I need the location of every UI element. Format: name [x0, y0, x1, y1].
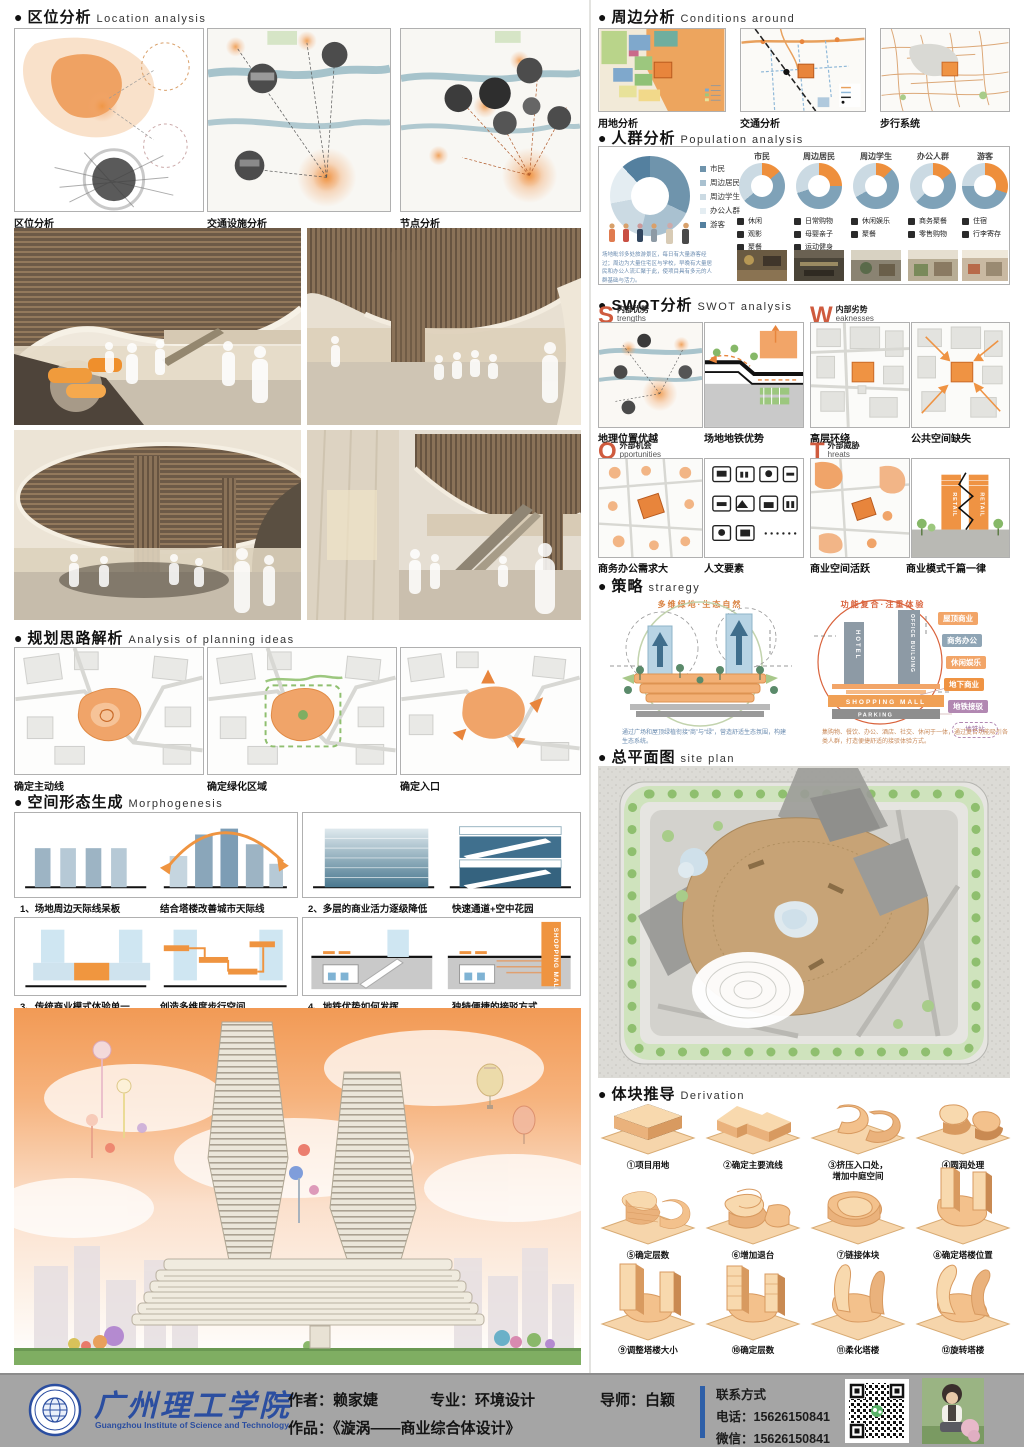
- strategy-tag: 商务办公: [942, 634, 982, 647]
- hotel-label: HOTEL: [854, 630, 860, 660]
- bullet-icon: ●: [14, 795, 22, 809]
- planning-diagram-green: [207, 647, 397, 775]
- section-header-conditions: ● 周边分析 Conditions around: [598, 6, 795, 27]
- need-item: 聚餐: [851, 229, 890, 239]
- donut-title: 周边居民: [794, 151, 844, 162]
- morph-caption: 快速通道+空中花园: [452, 901, 534, 915]
- swot-cn: 内部优势: [617, 305, 649, 314]
- work-title-text: 作品：《漩涡——商业综合体设计》: [288, 1417, 521, 1438]
- morph-caption: 结合塔楼改善城市天际线: [160, 901, 265, 915]
- derivation-block-12: [913, 1262, 1013, 1342]
- need-item: 行李寄存: [962, 229, 1001, 239]
- derivation-caption: ⑪柔化塔楼: [808, 1345, 908, 1356]
- planning-caption: 确定入口: [400, 778, 440, 793]
- needs-students: 休闲娱乐 聚餐: [851, 216, 890, 239]
- shopping-icon: [794, 218, 801, 225]
- legend-swatch: [700, 194, 706, 200]
- bullet-icon: ●: [598, 10, 606, 24]
- strategy-left-note: 通过广场和屋顶绿植衔接“商”与“绿”，营造舒适生态氛围，构建生态系统。: [622, 729, 790, 748]
- parking-label: PARKING: [858, 713, 893, 719]
- section-subtitle-swot: SWOT analysis: [697, 301, 792, 313]
- bullet-icon: ●: [14, 10, 22, 24]
- school-name: 广州理工学院: [94, 1381, 292, 1425]
- derivation-block-2: [703, 1098, 803, 1156]
- legend-swatch: [700, 208, 706, 214]
- need-item: 观影: [737, 229, 762, 239]
- swot-w-space-map: [911, 322, 1010, 428]
- scene-photo: [737, 250, 787, 281]
- strategy-tag: 休闲娱乐: [946, 656, 986, 669]
- section-header-strategy: ● 策略 straregy: [598, 575, 700, 596]
- wechat-qr-code: [845, 1379, 909, 1443]
- derivation-block-3: [808, 1098, 908, 1156]
- need-item: 日常购物: [794, 216, 833, 226]
- bullet-icon: ●: [598, 579, 606, 593]
- site-plan: [598, 766, 1010, 1078]
- family-icon: [794, 231, 801, 238]
- legend-item: 办公人群: [700, 205, 740, 216]
- people-illustration: [604, 222, 696, 248]
- section-subtitle-location: Location analysis: [96, 13, 206, 25]
- section-title-conditions: 周边分析: [611, 6, 675, 27]
- bullet-icon: ●: [598, 750, 606, 764]
- legend-item: 周边居民: [700, 177, 740, 188]
- swot-s-metro-diagram: [704, 322, 804, 428]
- legend-item: 市民: [700, 163, 740, 174]
- derivation-caption: ⑫旋转塔楼: [913, 1345, 1013, 1356]
- population-legend: 市民 周边居民 周边学生 办公人群 游客: [700, 163, 740, 230]
- tower-elevation-render: [14, 1008, 581, 1365]
- bullet-icon: ●: [598, 131, 606, 145]
- swot-caption: 商业模式千篇一律: [906, 560, 986, 575]
- donut-title: 市民: [737, 151, 787, 162]
- need-label: 聚餐: [862, 229, 876, 239]
- major-text: 专业：环境设计: [430, 1389, 535, 1410]
- retail-label: RETAIL: [979, 492, 985, 517]
- derivation-caption: ⑨调整塔楼大小: [598, 1345, 698, 1356]
- needs-tourists: 住宿 行李寄存: [962, 216, 1001, 239]
- swot-cn: 外部机会: [620, 441, 661, 450]
- need-label: 休闲娱乐: [862, 216, 890, 226]
- swot-caption: 公共空间缺失: [911, 430, 971, 445]
- contact-wechat: 微信：15626150841: [716, 1428, 830, 1447]
- poster: ● 区位分析 Location analysis: [0, 0, 1024, 1447]
- derivation-caption: ②确定主要流线: [703, 1160, 803, 1171]
- swot-caption: 商务办公需求大: [598, 560, 668, 575]
- donut-tourists: [962, 163, 1008, 209]
- school-name-en: Guangzhou Institute of Science and Techn…: [95, 1420, 289, 1430]
- need-item: 零售购物: [908, 229, 947, 239]
- legend-item: 游客: [700, 219, 740, 230]
- derivation-caption: ①项目用地: [598, 1160, 698, 1171]
- section-subtitle-strategy: straregy: [648, 582, 700, 594]
- contact-title: 联系方式: [716, 1384, 766, 1403]
- derivation-block-1: [598, 1098, 698, 1156]
- section-title-population: 人群分析: [611, 127, 675, 148]
- morph-panel-metro: SHOPPING MALL: [302, 917, 581, 996]
- strategy-tag: 屋顶商业: [938, 612, 978, 625]
- planning-diagram-axis: [14, 647, 204, 775]
- legend-item: 周边学生: [700, 191, 740, 202]
- need-label: 住宿: [973, 216, 987, 226]
- legend-label: 游客: [710, 219, 725, 230]
- donut-citizens: [739, 163, 785, 209]
- derivation-caption: ⑦链接体块: [808, 1250, 908, 1261]
- interior-render-3: [14, 430, 301, 620]
- morph-panel-skyline: [14, 812, 298, 898]
- hotel-icon: [962, 218, 969, 225]
- section-title-siteplan: 总平面图: [611, 746, 675, 767]
- shopping-mall-label: SHOPPING MALL: [846, 699, 926, 706]
- needs-residents: 日常购物 母婴亲子 运动健身: [794, 216, 833, 252]
- section-header-morphogenesis: ● 空间形态生成 Morphogenesis: [14, 791, 223, 812]
- scene-photo: [851, 250, 901, 281]
- need-label: 母婴亲子: [805, 229, 833, 239]
- section-header-population: ● 人群分析 Population analysis: [598, 127, 804, 148]
- location-map-nodes: [400, 28, 581, 212]
- traffic-map: [740, 28, 866, 112]
- legend-label: 周边居民: [710, 177, 740, 188]
- conditions-caption: 步行系统: [880, 115, 920, 130]
- university-emblem: [28, 1383, 82, 1437]
- derivation-block-11: [808, 1262, 908, 1342]
- advisor-text: 导师：白颖: [600, 1389, 675, 1410]
- derivation-caption: ⑥增加退台: [703, 1250, 803, 1261]
- need-label: 行李寄存: [973, 229, 1001, 239]
- strategy-tag: 地下商业: [944, 678, 984, 691]
- derivation-caption: ③挤压入口处， 增加中庭空间: [808, 1160, 908, 1182]
- interior-render-2: [307, 228, 581, 425]
- need-label: 零售购物: [919, 229, 947, 239]
- section-subtitle-population: Population analysis: [680, 134, 803, 146]
- scene-photo: [908, 250, 958, 281]
- swot-t-retail-diagram: RETAIL RETAIL: [911, 458, 1010, 558]
- need-item: 商务聚餐: [908, 216, 947, 226]
- derivation-block-4: [913, 1098, 1013, 1156]
- swot-caption: 商业空间活跃: [810, 560, 870, 575]
- planning-diagram-entrances: [400, 647, 581, 775]
- derivation-caption: ⑤确定层数: [598, 1250, 698, 1261]
- legend-label: 办公人群: [710, 205, 740, 216]
- need-label: 休闲: [748, 216, 762, 226]
- scene-photo: [794, 250, 844, 281]
- section-header-siteplan: ● 总平面图 site plan: [598, 746, 735, 767]
- section-subtitle-morphogenesis: Morphogenesis: [128, 798, 223, 810]
- location-map-transport: [207, 28, 391, 212]
- donut-office: [910, 163, 956, 209]
- swot-cn: 内部劣势: [836, 305, 874, 314]
- section-title-morphogenesis: 空间形态生成: [27, 791, 123, 812]
- swot-cn: 外部威胁: [828, 441, 860, 450]
- legend-label: 周边学生: [710, 191, 740, 202]
- contact-divider: [700, 1386, 705, 1438]
- derivation-block-8: [913, 1164, 1013, 1246]
- cinema-icon: [737, 231, 744, 238]
- derivation-block-5: [598, 1180, 698, 1246]
- need-item: 母婴亲子: [794, 229, 833, 239]
- section-title-strategy: 策略: [611, 575, 643, 596]
- section-header-location: ● 区位分析 Location analysis: [14, 6, 206, 27]
- morph-caption: 1、场地周边天际线呆板: [20, 901, 120, 915]
- business-dining-icon: [908, 218, 915, 225]
- morph-panel-experience: [14, 917, 298, 996]
- landuse-map: [598, 28, 726, 112]
- contact-phone: 电话：15626150841: [716, 1406, 830, 1425]
- pedestrian-map: [880, 28, 1010, 112]
- retail-icon: [908, 231, 915, 238]
- bullet-icon: ●: [14, 631, 22, 645]
- donut-students: [853, 163, 899, 209]
- derivation-caption: ⑩确定层数: [703, 1345, 803, 1356]
- legend-swatch: [700, 166, 706, 172]
- author-text: 作者：赖家婕: [288, 1389, 378, 1410]
- retail-label: RETAIL: [951, 492, 957, 517]
- need-label: 观影: [748, 229, 762, 239]
- swot-caption: 人文要素: [704, 560, 744, 575]
- morph-caption: 2、多层的商业活力逐级降低: [308, 901, 427, 915]
- swot-caption: 场地地铁优势: [704, 430, 764, 445]
- legend-swatch: [700, 180, 706, 186]
- swot-o-culture-icons: [704, 458, 804, 558]
- swot-t-commerce-map: [810, 458, 910, 558]
- donut-title: 游客: [960, 151, 1010, 162]
- section-subtitle-conditions: Conditions around: [680, 13, 795, 25]
- shopping-mall-label: SHOPPING MALL: [552, 928, 559, 993]
- column-divider: [589, 0, 591, 1373]
- location-map-china: [14, 28, 204, 212]
- section-header-planning: ● 规划思路解析 Analysis of planning ideas: [14, 627, 295, 648]
- derivation-caption: ⑧确定塔楼位置: [913, 1250, 1013, 1261]
- need-item: 休闲: [737, 216, 762, 226]
- derivation-block-6: [703, 1180, 803, 1246]
- strategy-eco-diagram: [600, 596, 800, 728]
- needs-office: 商务聚餐 零售购物: [908, 216, 947, 239]
- interior-render-1: [14, 228, 301, 425]
- need-item: 休闲娱乐: [851, 216, 890, 226]
- strategy-tag: 地铁接驳: [948, 700, 988, 713]
- strategy-mix-diagram: HOTEL OFFICE BUILDING SHOPPING MALL PARK…: [806, 596, 956, 728]
- need-item: 住宿: [962, 216, 1001, 226]
- section-title-location: 区位分析: [27, 6, 91, 27]
- office-building-label: OFFICE BUILDING: [909, 614, 915, 673]
- legend-swatch: [700, 222, 706, 228]
- legend-label: 市民: [710, 163, 725, 174]
- derivation-block-10: [703, 1262, 803, 1342]
- derivation-block-9: [598, 1262, 698, 1342]
- need-label: 商务聚餐: [919, 216, 947, 226]
- strategy-right-note: 集购物、餐饮、办公、酒店、社交、休闲于一体，通过复合功能吸引各类人群，打造便捷舒…: [822, 729, 1008, 748]
- morph-panel-vitality: [302, 812, 581, 898]
- donut-title: 办公人群: [908, 151, 958, 162]
- donut-residents: [796, 163, 842, 209]
- section-title-planning: 规划思路解析: [27, 627, 123, 648]
- swot-o-office-map: [598, 458, 703, 558]
- scene-photo: [962, 250, 1008, 281]
- population-note: 场地毗邻多处旅游景区，每日有大量游客经过；周边为大量住宅区与学校，早晚有大量居民…: [602, 251, 714, 285]
- interior-render-4: [307, 430, 581, 620]
- donut-title: 周边学生: [851, 151, 901, 162]
- entertainment-icon: [851, 218, 858, 225]
- swot-s-map: [598, 322, 703, 428]
- needs-citizens: 休闲 观影 聚餐: [737, 216, 762, 252]
- author-photo: [922, 1378, 984, 1444]
- swot-w-highrise-map: [810, 322, 910, 428]
- section-subtitle-siteplan: site plan: [680, 753, 734, 765]
- leisure-icon: [737, 218, 744, 225]
- dining-icon: [851, 231, 858, 238]
- footer-bar: 广州理工学院 Guangzhou Institute of Science an…: [0, 1373, 1024, 1447]
- need-label: 日常购物: [805, 216, 833, 226]
- luggage-icon: [962, 231, 969, 238]
- derivation-block-7: [808, 1180, 908, 1246]
- section-subtitle-planning: Analysis of planning ideas: [128, 634, 294, 646]
